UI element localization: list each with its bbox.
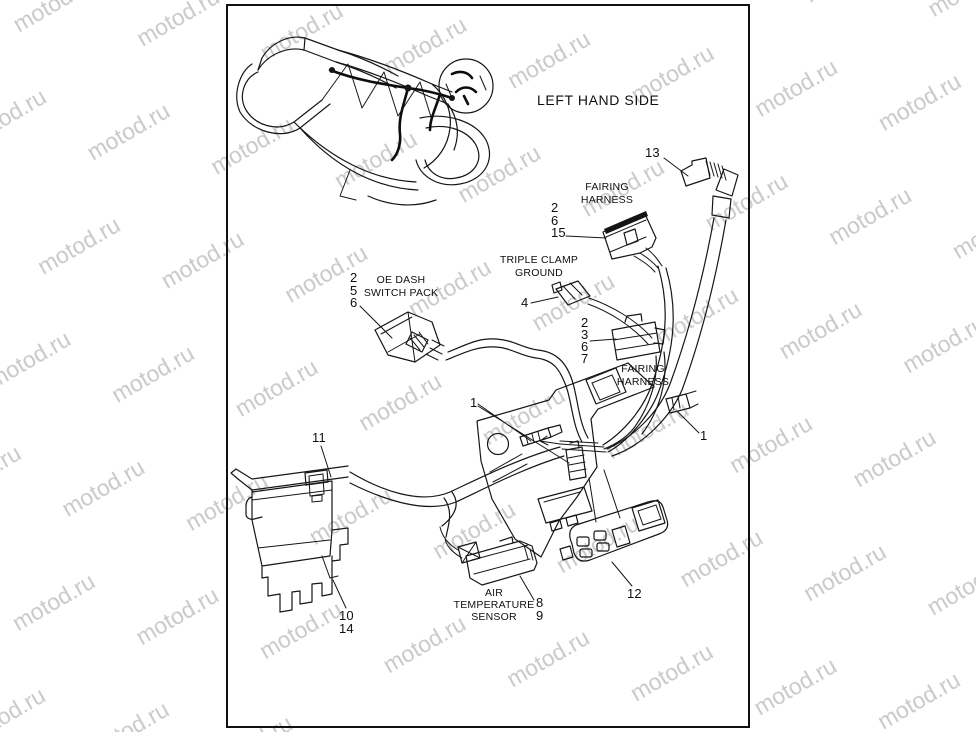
part-12: 12 [627, 587, 642, 600]
parts-8-9: 8 9 [536, 596, 543, 622]
caption-fairing-harness-top: FAIRING HARNESS [581, 181, 633, 207]
part-13: 13 [645, 146, 660, 159]
parts-10-14: 10 14 [339, 609, 354, 635]
diagram-title: LEFT HAND SIDE [537, 92, 660, 108]
parts-2-5-6: 2 5 6 [350, 272, 357, 310]
part-1-left: 1 [470, 396, 477, 409]
part-11: 11 [312, 431, 326, 444]
parts-2-3-6-7: 2 3 6 7 [581, 317, 588, 365]
parts-2-6-15: 2 6 15 [551, 202, 566, 240]
part-4: 4 [521, 296, 528, 309]
caption-triple-clamp-ground: TRIPLE CLAMP GROUND [500, 254, 578, 280]
diagram-page: motod.ru motod.ru [0, 0, 976, 732]
caption-air-temperature-sensor: AIR TEMPERATURE SENSOR [454, 587, 535, 623]
caption-fairing-harness-lower: FAIRING HARNESS [617, 363, 669, 389]
part-1-right: 1 [700, 429, 707, 442]
caption-oe-dash-switch-pack: OE DASH SWITCH PACK [364, 274, 438, 300]
